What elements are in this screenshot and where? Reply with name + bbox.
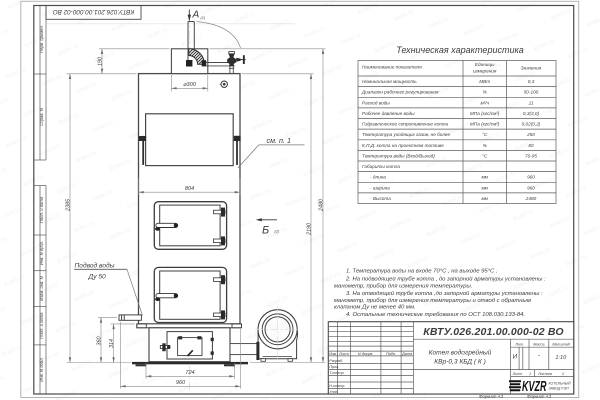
svg-text:Температура уходящих газов, не: Температура уходящих газов, не более — [362, 132, 451, 137]
svg-text:К.П.Д. котла на проектном топл: К.П.Д. котла на проектном топливе — [362, 143, 444, 148]
svg-text:Б: Б — [262, 225, 269, 237]
svg-text:КВТУ.026.201.00.000-02 ВО: КВТУ.026.201.00.000-02 ВО — [423, 326, 564, 338]
svg-text:Дата: Дата — [401, 352, 412, 356]
svg-text:0,3(3,0): 0,3(3,0) — [523, 111, 540, 116]
svg-text:2. На подводящей трубе котла: 2. На подводящей трубе котла , до запорн… — [345, 276, 546, 283]
svg-text:Лист: Лист — [338, 352, 349, 356]
svg-text:Расход воды: Расход воды — [362, 100, 390, 105]
svg-text:Пров.: Пров. — [329, 365, 339, 369]
svg-text:724: 724 — [185, 370, 194, 376]
svg-text:Формат А3: Формат А3 — [479, 394, 504, 399]
svg-text:Значения: Значения — [521, 66, 542, 71]
svg-text:%: % — [483, 90, 487, 95]
svg-text:-: - — [538, 353, 540, 360]
svg-text:Лит.: Лит. — [514, 343, 524, 347]
svg-text:⌀300: ⌀300 — [183, 82, 197, 88]
svg-text:Подп. и дата: Подп. и дата — [39, 312, 44, 339]
svg-text:Котел водогрейный: Котел водогрейный — [429, 349, 492, 357]
svg-text:Наименование показателя: Наименование показателя — [362, 64, 422, 69]
svg-text:Температура воды (Вход/Выход): Температура воды (Вход/Выход) — [362, 153, 435, 158]
svg-text:N докум.: N докум. — [358, 352, 373, 356]
svg-text:Н.контр.: Н.контр. — [329, 384, 345, 388]
svg-text:см. п. 1: см. п. 1 — [267, 136, 291, 145]
svg-text:Габариты котла: Габариты котла — [362, 164, 400, 169]
svg-text:Разраб.: Разраб. — [329, 359, 343, 363]
svg-text:Подвод воды: Подвод воды — [75, 261, 115, 269]
svg-text:Диапазон рабочего регулировани: Диапазон рабочего регулирования — [361, 90, 439, 95]
svg-text:- ширина: - ширина — [370, 185, 390, 190]
svg-text:Формат А3: Формат А3 — [527, 394, 552, 399]
svg-text:960: 960 — [527, 175, 535, 180]
svg-text:Лист: Лист — [512, 372, 523, 376]
svg-text:190: 190 — [98, 57, 104, 66]
svg-text:Ду 50: Ду 50 — [88, 273, 107, 280]
svg-text:Подп.: Подп. — [386, 352, 396, 356]
svg-text:360: 360 — [97, 337, 103, 346]
svg-text:Номинальная мощность: Номинальная мощность — [362, 79, 417, 84]
svg-text:960: 960 — [527, 185, 535, 190]
svg-text:Гидравлическое сопротивление к: Гидравлическое сопротивление котла — [362, 122, 449, 127]
svg-text:Подп. и дата: Подп. и дата — [39, 196, 44, 223]
svg-text:И: И — [513, 353, 518, 360]
svg-text:0,02(0,2): 0,02(0,2) — [522, 122, 541, 127]
svg-text:°С: °С — [482, 132, 488, 137]
svg-text:314: 314 — [109, 339, 115, 348]
svg-text:Единицы: Единицы — [475, 62, 495, 67]
svg-text:Изм: Изм — [329, 352, 336, 356]
svg-text:МВт: МВт — [479, 79, 490, 84]
svg-text:804: 804 — [185, 186, 194, 192]
svg-text:ЗАВОД РЭП: ЗАВОД РЭП — [549, 387, 570, 391]
svg-text:70-95: 70-95 — [525, 153, 537, 158]
svg-text:Масса: Масса — [533, 343, 544, 347]
svg-text:2190: 2190 — [307, 223, 313, 236]
svg-text:- длина: - длина — [370, 175, 386, 180]
svg-text:°С: °С — [482, 153, 488, 158]
svg-text:манометр, прибор для измерения: манометр, прибор для измерения температу… — [334, 284, 472, 290]
svg-text:4. Остальные технические тре: 4. Остальные технические требования по О… — [346, 312, 525, 318]
svg-text:МПа (кгс/см²): МПа (кгс/см²) — [470, 122, 500, 127]
svg-text:Справ. N: Справ. N — [39, 107, 44, 125]
svg-text:Рабочее давление воды: Рабочее давление воды — [362, 111, 415, 116]
svg-text:КОТЕЛЬНЫЙ: КОТЕЛЬНЫЙ — [549, 381, 572, 385]
svg-text:клапаном Ду не менее 40 мм.: клапаном Ду не менее 40 мм. — [334, 305, 416, 311]
svg-text:Листов: Листов — [537, 372, 552, 376]
svg-text:Т.контр.: Т.контр. — [329, 371, 344, 375]
svg-text:Техническая характеристика: Техническая характеристика — [396, 45, 523, 55]
svg-text:250: 250 — [526, 132, 535, 137]
svg-text:80: 80 — [528, 143, 534, 148]
svg-text:Инв. N подл.: Инв. N подл. — [39, 357, 44, 381]
svg-text:А: А — [192, 10, 200, 21]
svg-text:KVZR: KVZR — [522, 379, 547, 395]
svg-text:1. Температура воды на входе: 1. Температура воды на входе 70°С , на в… — [346, 269, 498, 275]
svg-text:мм: мм — [481, 196, 488, 201]
svg-text:измерения: измерения — [473, 69, 497, 74]
svg-text:0,3: 0,3 — [528, 79, 535, 84]
svg-text:МПа (кгс/см²): МПа (кгс/см²) — [470, 111, 500, 116]
svg-text:- Высота: - Высота — [370, 196, 391, 201]
svg-text:1: 1 — [529, 372, 531, 376]
svg-text:2480: 2480 — [525, 196, 537, 201]
svg-text:2385: 2385 — [66, 198, 72, 212]
svg-text:Масштаб: Масштаб — [552, 343, 571, 347]
svg-text:мм: мм — [481, 185, 488, 190]
svg-text:мм: мм — [481, 175, 488, 180]
svg-text:Утв.: Утв. — [329, 390, 338, 394]
svg-text:КВр-0,3 КБД ( К ): КВр-0,3 КБД ( К ) — [434, 358, 486, 365]
svg-text:(2): (2) — [201, 16, 205, 20]
svg-text:Перв. примен.: Перв. примен. — [39, 25, 44, 53]
svg-text:Взам. инв. N: Взам. инв. N — [39, 275, 44, 300]
svg-text:11: 11 — [529, 100, 534, 105]
svg-text:2480: 2480 — [319, 199, 325, 212]
svg-text:3. На отводящей трубе котла: 3. На отводящей трубе котла ,до запорной… — [346, 290, 543, 297]
svg-text:1:10: 1:10 — [555, 355, 567, 361]
svg-text:м³/ч: м³/ч — [480, 100, 489, 105]
svg-text:Инв. N дубл.: Инв. N дубл. — [39, 241, 44, 265]
svg-text:%: % — [483, 143, 487, 148]
svg-text:манометр, прибор для измерения: манометр, прибор для измерения температу… — [334, 298, 531, 304]
svg-text:(2): (2) — [275, 230, 279, 234]
svg-text:50-100: 50-100 — [524, 90, 539, 95]
svg-text:960: 960 — [176, 380, 186, 386]
svg-text:КВТУ.026.201.00.000-02 ВО: КВТУ.026.201.00.000-02 ВО — [53, 8, 134, 15]
